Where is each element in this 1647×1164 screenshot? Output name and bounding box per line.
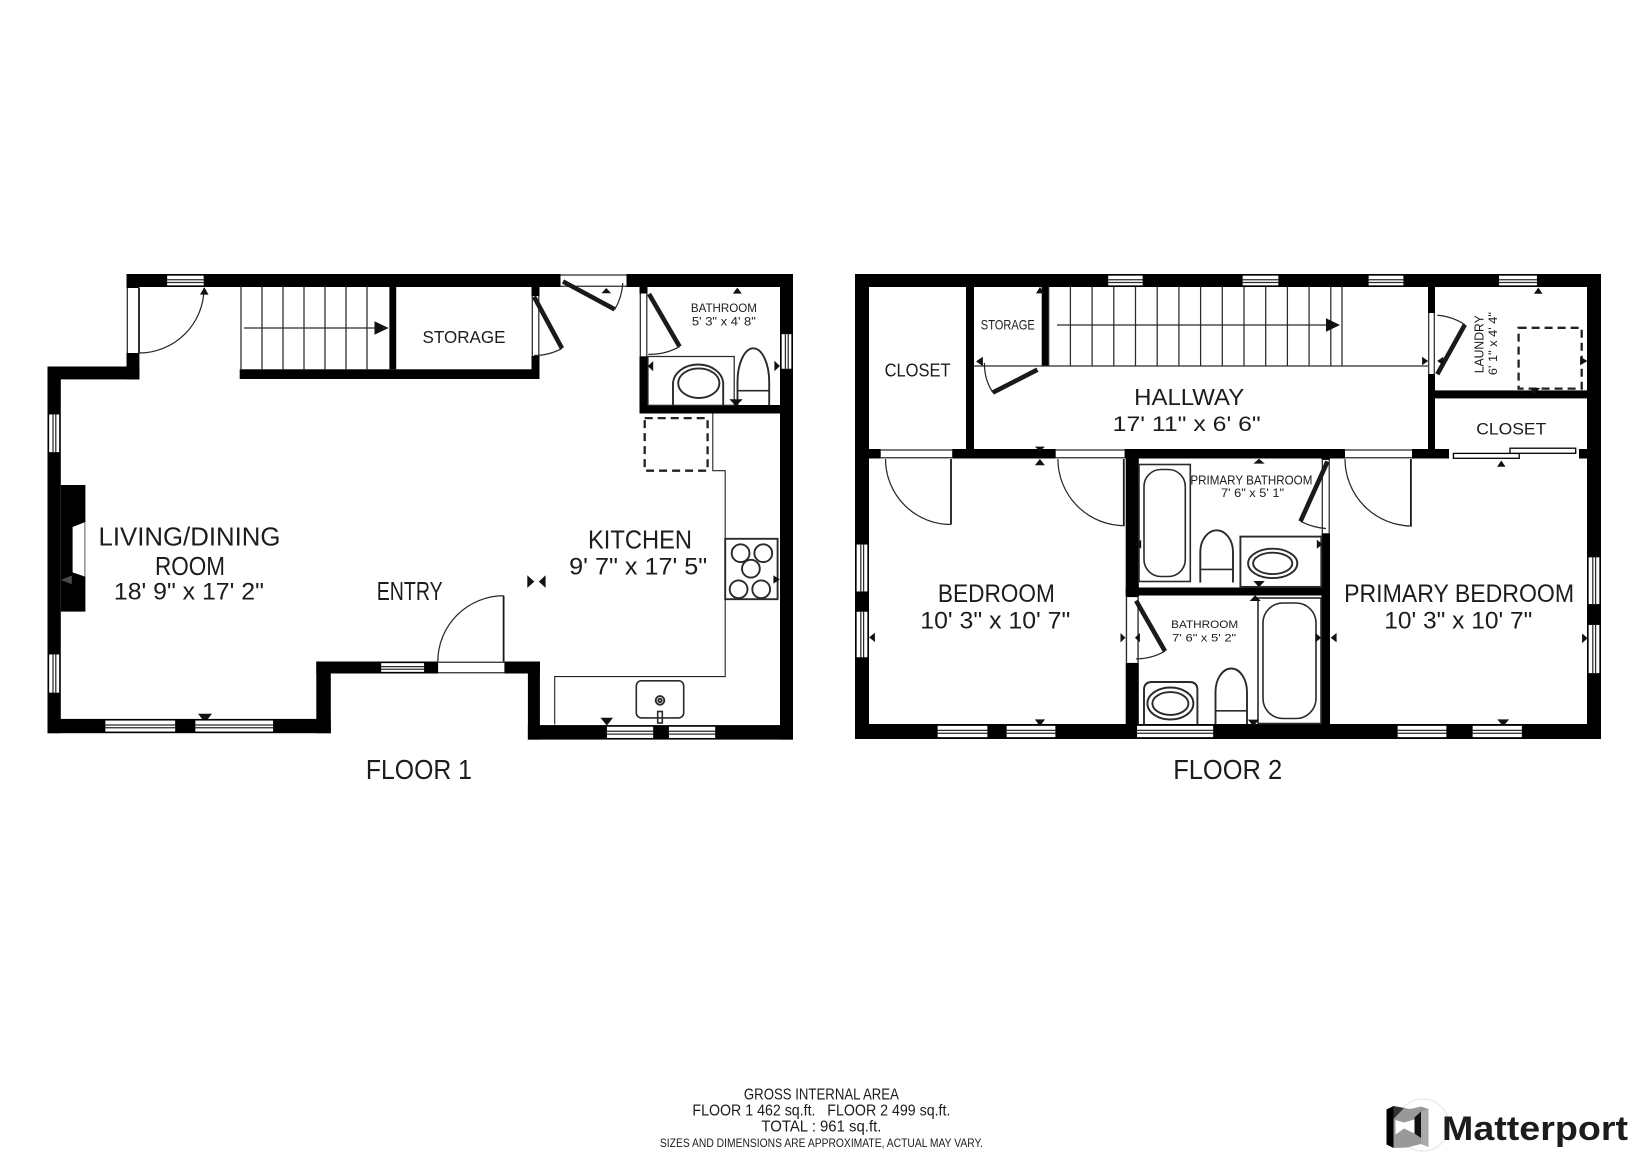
svg-text:18' 9" x 17' 2": 18' 9" x 17' 2": [114, 578, 264, 605]
svg-text:6' 1" x 4' 4": 6' 1" x 4' 4": [1486, 312, 1500, 375]
svg-text:HALLWAY: HALLWAY: [1134, 384, 1244, 410]
svg-text:GROSS INTERNAL AREA: GROSS INTERNAL AREA: [744, 1086, 900, 1103]
svg-text:17' 11" x 6' 6": 17' 11" x 6' 6": [1113, 413, 1261, 436]
svg-text:TOTAL : 961 sq.ft.: TOTAL : 961 sq.ft.: [761, 1119, 881, 1136]
svg-text:CLOSET: CLOSET: [1476, 420, 1546, 439]
svg-text:LIVING/DINING: LIVING/DINING: [99, 522, 281, 552]
svg-text:FLOOR 1: FLOOR 1: [366, 754, 472, 785]
svg-text:10' 3" x 10' 7": 10' 3" x 10' 7": [1384, 607, 1532, 634]
svg-text:FLOOR 2: FLOOR 2: [1173, 754, 1282, 785]
svg-text:ENTRY: ENTRY: [377, 576, 443, 606]
svg-text:7' 6" x 5' 1": 7' 6" x 5' 1": [1221, 487, 1284, 500]
svg-text:LAUNDRY: LAUNDRY: [1472, 315, 1487, 373]
svg-text:STORAGE: STORAGE: [423, 327, 506, 347]
svg-text:5' 3" x 4' 8": 5' 3" x 4' 8": [692, 315, 756, 329]
svg-text:CLOSET: CLOSET: [885, 360, 951, 381]
svg-text:FLOOR 1 462 sq.ft. FLOOR 2 4: FLOOR 1 462 sq.ft. FLOOR 2 499 sq.ft.: [692, 1103, 950, 1120]
svg-text:BEDROOM: BEDROOM: [938, 581, 1055, 608]
svg-text:STORAGE: STORAGE: [981, 317, 1035, 333]
svg-text:ROOM: ROOM: [155, 551, 225, 581]
svg-text:7' 6" x 5' 2": 7' 6" x 5' 2": [1172, 632, 1236, 644]
svg-text:Matterport: Matterport: [1442, 1110, 1628, 1148]
svg-text:KITCHEN: KITCHEN: [588, 525, 692, 555]
svg-text:BATHROOM: BATHROOM: [1171, 619, 1238, 631]
svg-text:BATHROOM: BATHROOM: [691, 301, 757, 315]
svg-text:PRIMARY BATHROOM: PRIMARY BATHROOM: [1190, 473, 1312, 487]
svg-text:PRIMARY BEDROOM: PRIMARY BEDROOM: [1344, 581, 1574, 608]
svg-text:9' 7" x 17' 5": 9' 7" x 17' 5": [569, 553, 707, 580]
svg-text:10' 3" x 10' 7": 10' 3" x 10' 7": [920, 608, 1070, 635]
svg-text:SIZES AND DIMENSIONS ARE APPRO: SIZES AND DIMENSIONS ARE APPROXIMATE, AC…: [660, 1138, 983, 1150]
